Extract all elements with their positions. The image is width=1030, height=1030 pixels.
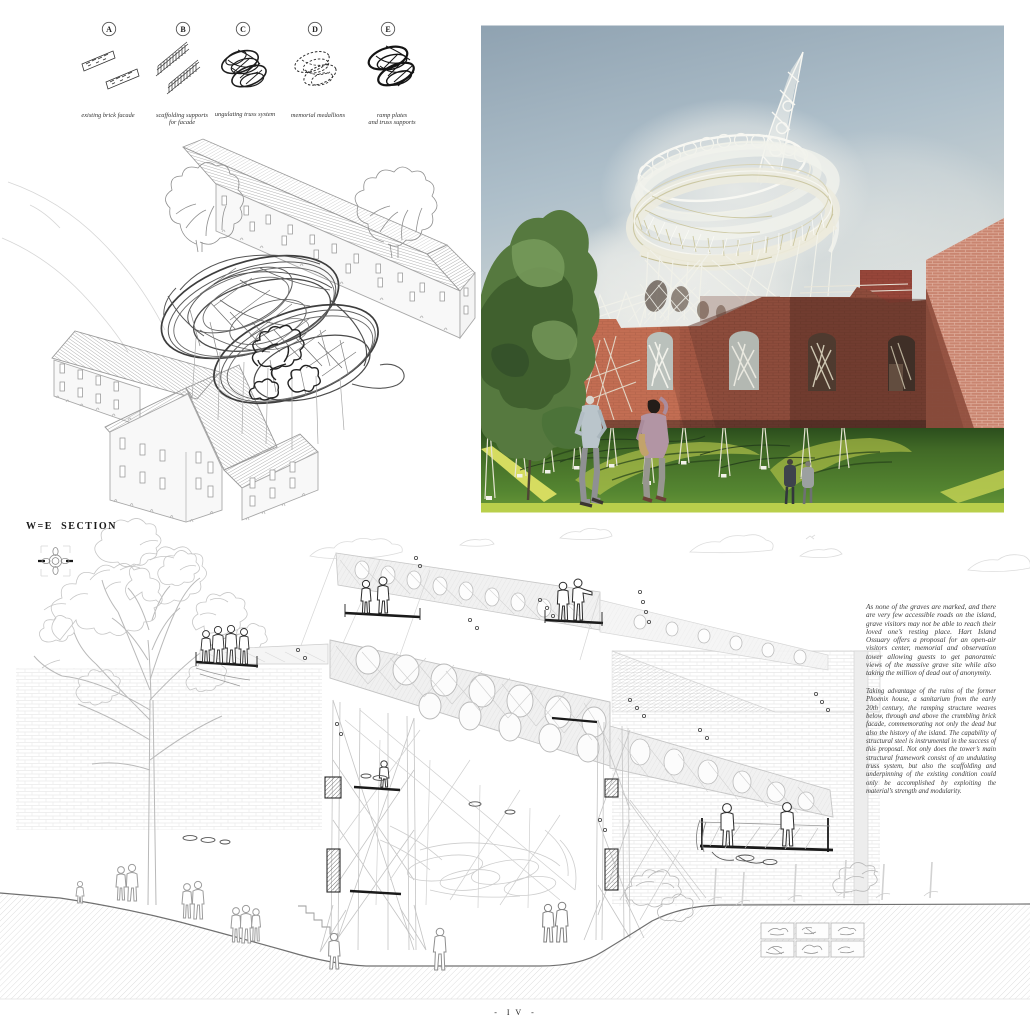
svg-text:C: C xyxy=(240,25,246,34)
svg-text:D: D xyxy=(312,25,318,34)
svg-text:A: A xyxy=(106,25,112,34)
svg-text:E: E xyxy=(385,25,390,34)
svg-text:B: B xyxy=(180,25,186,34)
